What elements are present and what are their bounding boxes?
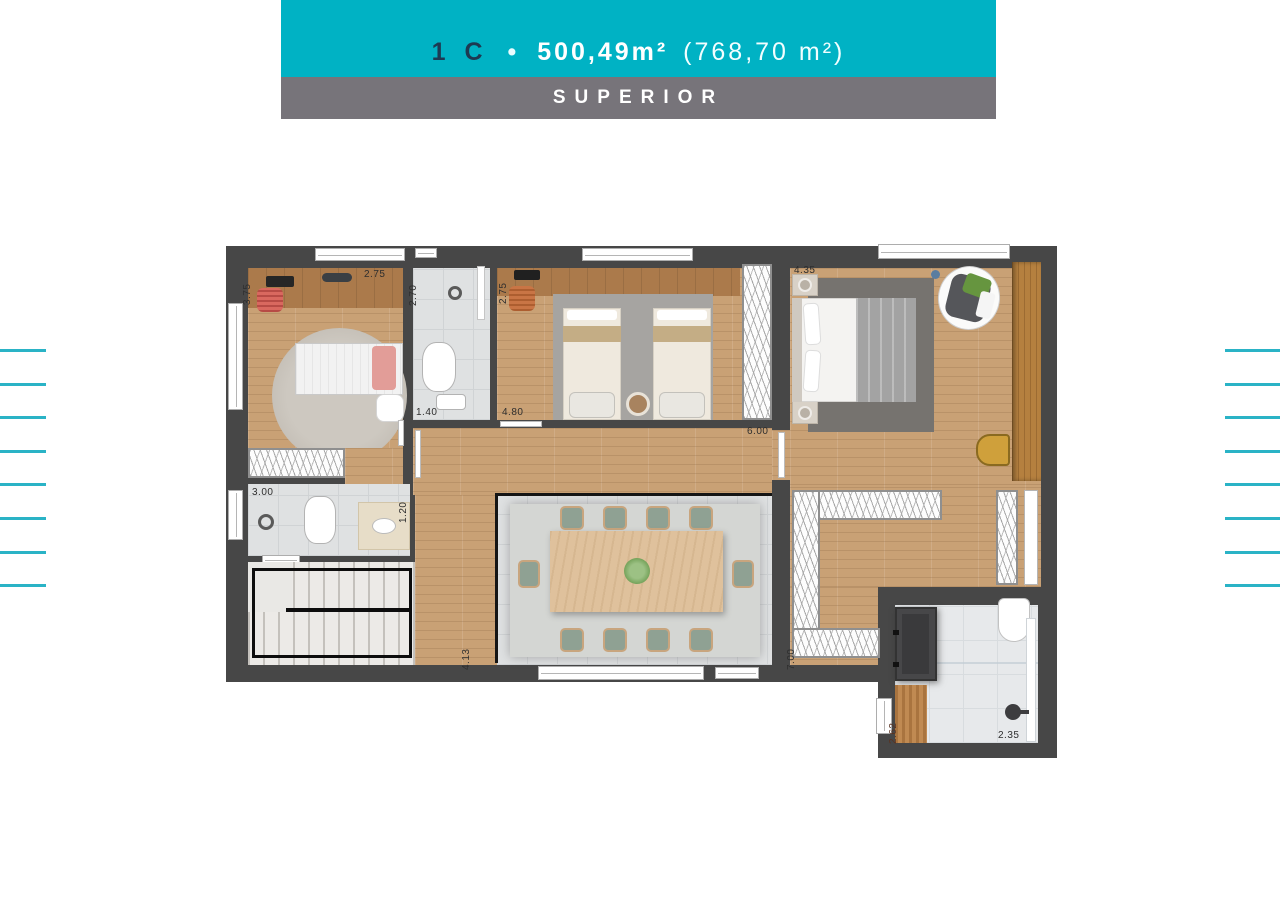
private-area-label: 500,49m²	[537, 38, 668, 66]
bedroom2-bed-a-pillow	[567, 310, 617, 320]
master-bath-shower-glass	[1026, 618, 1036, 742]
dining-chair	[518, 560, 540, 588]
master-wardrobe	[1012, 262, 1041, 481]
dining-chair	[603, 506, 627, 530]
master-door-leaf	[778, 432, 785, 478]
decor-line	[0, 483, 46, 486]
bedroom2-side-table	[626, 392, 650, 416]
dining-ceiling-line-top	[495, 493, 772, 496]
decor-line	[0, 416, 46, 419]
closet-shelf-bottom	[792, 628, 880, 658]
stair-railing-inner	[286, 608, 412, 612]
hall-window-bottom	[715, 667, 759, 679]
decor-line	[0, 349, 46, 352]
dim-bedroom1-depth: 3.75	[242, 269, 254, 305]
bedroom1-window-top	[315, 248, 405, 261]
closet-shelf-right	[996, 490, 1018, 585]
master-bath-vanity-basin	[902, 614, 929, 674]
bedroom1-door-leaf	[398, 420, 404, 446]
master-bed-pillow	[803, 349, 822, 392]
title-separator: •	[507, 38, 518, 66]
total-area-label: (768,70 m²)	[683, 38, 845, 66]
master-bath-shower-head	[1005, 704, 1021, 720]
master-desk-chair	[976, 434, 1010, 466]
floor-plan: 3.75 2.75 2.70 2.75 4.35 1.40 4.80 6.00 …	[226, 242, 1057, 758]
bedroom2-bench-a	[569, 392, 615, 418]
master-bath-faucet	[893, 662, 899, 667]
dim-master-bath-deck-width: 2.62	[888, 708, 900, 744]
bedroom2-window-top	[582, 248, 693, 261]
dim-corridor-depth: 4.13	[461, 634, 473, 670]
dim-bedroom2-depth: 2.75	[498, 268, 510, 304]
dim-closet-depth: 7.00	[786, 634, 798, 670]
page: 1 C • 500,49m² (768,70 m²) SUPERIOR	[0, 0, 1280, 911]
decor-line	[0, 383, 46, 386]
dim-master-bath-width: 2.35	[998, 730, 1019, 742]
bedroom2-bed-b-band	[653, 326, 711, 342]
bedroom1-laptop	[266, 276, 294, 287]
bath1-toilet	[422, 342, 456, 392]
decor-line	[0, 551, 46, 554]
bedroom2-bed-a-band	[563, 326, 621, 342]
dining-chair	[560, 628, 584, 652]
bedroom2-door-leaf	[500, 421, 542, 427]
service-bath-window-left	[228, 490, 243, 540]
bedroom2-wardrobe	[742, 264, 772, 420]
master-bed-pillow	[803, 302, 822, 345]
decor-line	[1225, 551, 1280, 554]
master-side-vase	[931, 270, 940, 279]
hall-floor	[413, 428, 772, 495]
decor-line	[1225, 450, 1280, 453]
stair-railing	[252, 568, 412, 658]
corridor-floor	[415, 495, 497, 665]
master-bed-blanket	[856, 298, 916, 402]
dining-plant	[624, 558, 650, 584]
dim-service-bath-width: 3.00	[252, 487, 273, 499]
decor-lines-left	[0, 349, 46, 594]
bedroom1-pouf	[376, 394, 404, 422]
level-label: SUPERIOR	[553, 87, 724, 109]
closet-door	[1024, 490, 1038, 585]
dining-chair	[646, 628, 670, 652]
header-band: 1 C • 500,49m² (768,70 m²)	[281, 0, 996, 77]
dim-bath1-width: 1.40	[416, 407, 437, 419]
master-lamp-top	[798, 278, 812, 292]
master-lamp-bottom	[798, 406, 812, 420]
level-bar: SUPERIOR	[281, 77, 996, 119]
bedroom2-laptop	[514, 270, 540, 280]
bedroom1-closet	[248, 448, 345, 478]
bedroom2-bed-b-pillow	[657, 310, 707, 320]
bath1-sink	[436, 394, 466, 410]
decor-line	[1225, 483, 1280, 486]
bedroom1-window-left	[228, 303, 243, 410]
dim-service-bath-depth: 1.20	[398, 487, 410, 523]
service-bath-shower-head	[258, 514, 274, 530]
bedroom2-bench-b	[659, 392, 705, 418]
bath1-shower-glass	[477, 266, 485, 320]
dining-chair	[646, 506, 670, 530]
decor-line	[1225, 584, 1280, 587]
dining-ceiling-line-left	[495, 493, 498, 663]
decor-line	[0, 517, 46, 520]
dining-window-bottom	[538, 666, 704, 680]
decor-lines-right	[1225, 349, 1280, 594]
dim-master-width: 4.35	[794, 265, 815, 277]
dim-hall-width: 6.00	[747, 426, 768, 438]
master-bath-faucet	[893, 630, 899, 635]
dim-bedroom2-width: 4.80	[502, 407, 523, 419]
bedroom1-doorway	[345, 448, 403, 484]
master-window-top	[878, 244, 1010, 259]
decor-line	[1225, 517, 1280, 520]
decor-line	[1225, 416, 1280, 419]
bath1-window-top	[415, 248, 437, 258]
dining-chair	[689, 628, 713, 652]
bath1-door-leaf	[415, 430, 421, 478]
page-title: 1 C • 500,49m² (768,70 m²)	[432, 38, 846, 67]
dining-chair	[689, 506, 713, 530]
decor-line	[0, 584, 46, 587]
decor-line	[1225, 383, 1280, 386]
dining-chair	[732, 560, 754, 588]
dim-bedroom1-width: 2.75	[364, 269, 385, 281]
dim-bath1-depth: 2.70	[408, 270, 420, 306]
bath1-shower-head	[448, 286, 462, 300]
service-bath-toilet	[304, 496, 336, 544]
master-bed-headboard	[792, 298, 802, 402]
dining-chair	[560, 506, 584, 530]
dining-chair	[603, 628, 627, 652]
decor-line	[1225, 349, 1280, 352]
bedroom1-bed-cushion	[372, 346, 396, 390]
bedroom1-desk-lamp	[322, 273, 352, 282]
bedroom2-chair	[509, 286, 535, 311]
bedroom1-chair	[257, 288, 283, 312]
unit-label: 1 C	[432, 38, 489, 66]
service-bath-sink	[372, 518, 396, 534]
decor-line	[0, 450, 46, 453]
